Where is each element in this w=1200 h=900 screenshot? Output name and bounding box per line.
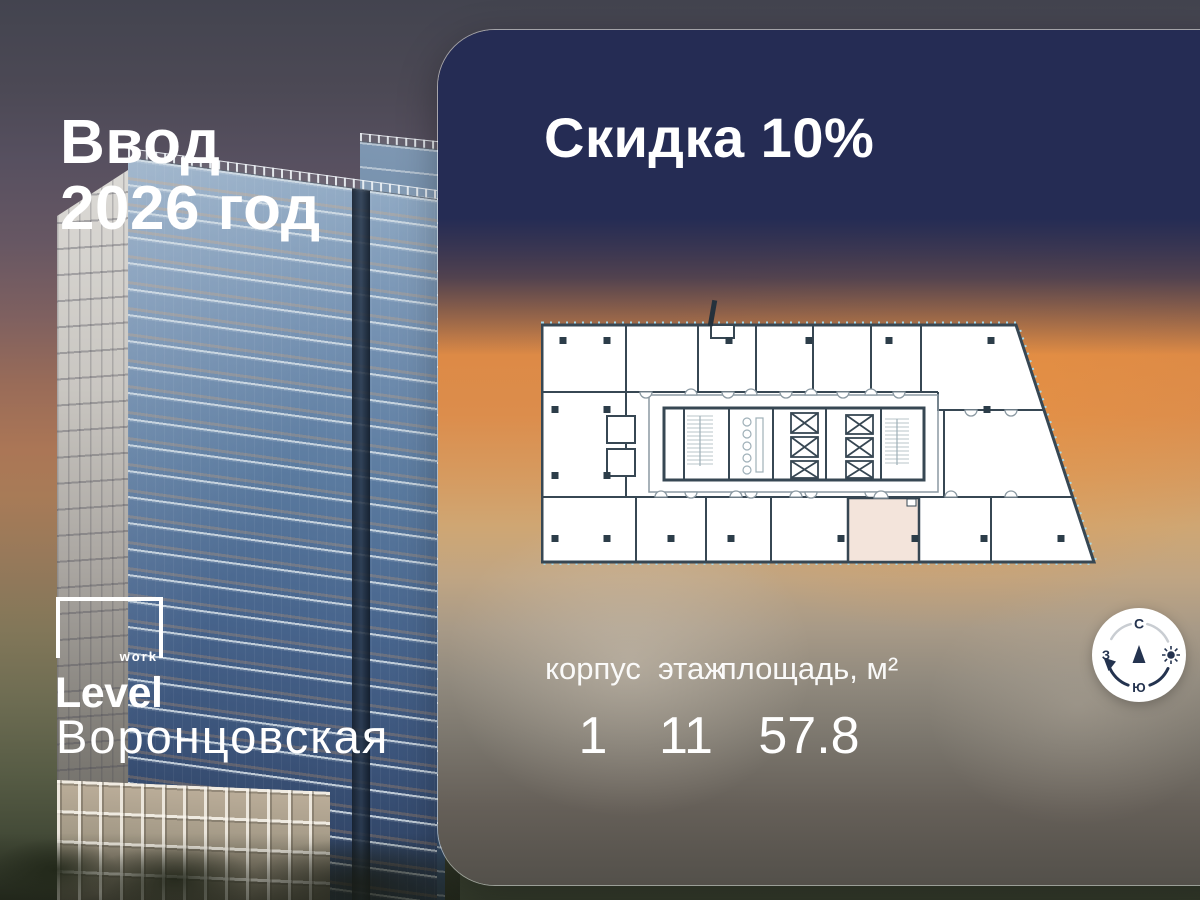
unit-info: корпус 1 этаж 11 площадь, м² 57.8 [528,652,904,764]
floor-plan [541,295,1141,565]
compass-south-label: Ю [1132,680,1145,695]
commissioning-line2: 2026 год [60,176,321,242]
logo-sub-label: work [120,649,158,664]
area-label: площадь, м² [714,652,904,686]
compass-north-label: С [1134,616,1144,632]
unit-info-area: площадь, м² 57.8 [714,652,904,764]
unit-info-floor: этаж 11 [658,652,714,764]
level-work-logo: work Level [56,597,163,703]
promo-banner: Ввод 2026 год work Level Воронцовская Ск… [0,0,1200,900]
sun-icon [1162,646,1180,664]
building-label: корпус [528,652,658,686]
unit-info-building: корпус 1 [528,652,658,764]
building-value: 1 [528,708,658,764]
trees-silhouette [0,833,460,900]
compass-icon: С З Ю [1091,607,1187,703]
offer-card[interactable]: Скидка 10% [437,29,1200,886]
logo-frame-top [56,597,163,601]
facade-joint [352,188,370,900]
project-name: Воронцовская [56,712,389,762]
compass-west-label: З [1102,648,1110,663]
discount-title: Скидка 10% [544,108,874,168]
floor-label: этаж [658,652,714,686]
area-value: 57.8 [714,708,904,764]
commissioning-title: Ввод 2026 год [60,110,321,242]
floor-value: 11 [658,708,714,764]
logo-frame-left [56,597,60,658]
highlighted-unit [848,498,919,562]
commissioning-line1: Ввод [60,110,321,176]
logo-frame-right [159,597,163,658]
